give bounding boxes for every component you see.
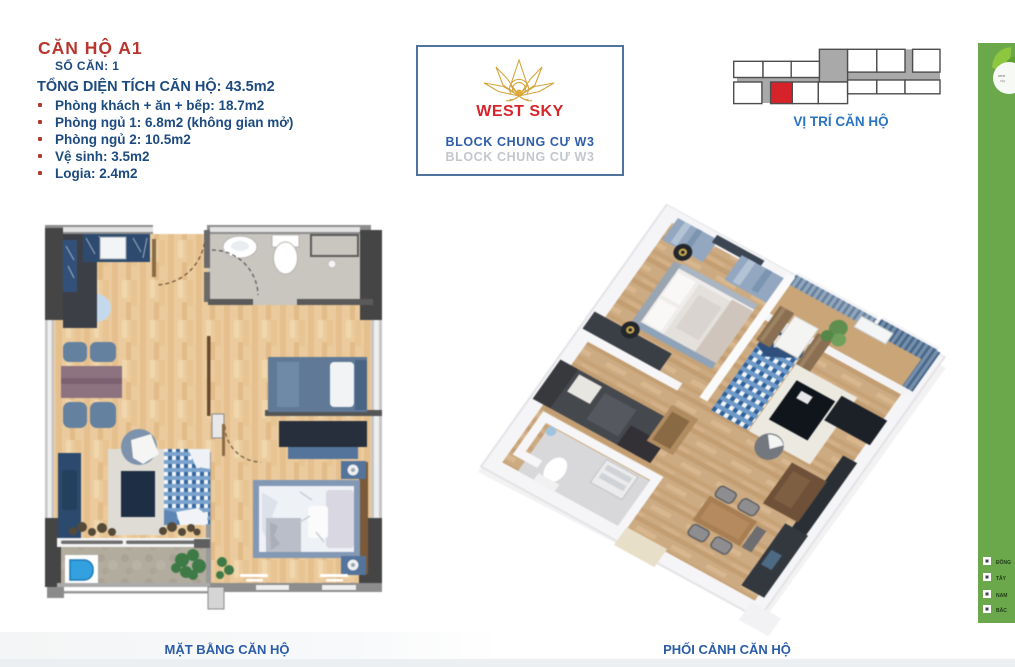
svg-text:ĐÔNG: ĐÔNG (996, 558, 1011, 566)
svg-text:NAM: NAM (996, 593, 1007, 599)
svg-text:TÂY: TÂY (996, 575, 1007, 582)
svg-text:west: west (998, 74, 1005, 78)
svg-text:sky: sky (1000, 79, 1006, 83)
svg-text:BẮC: BẮC (996, 606, 1007, 614)
